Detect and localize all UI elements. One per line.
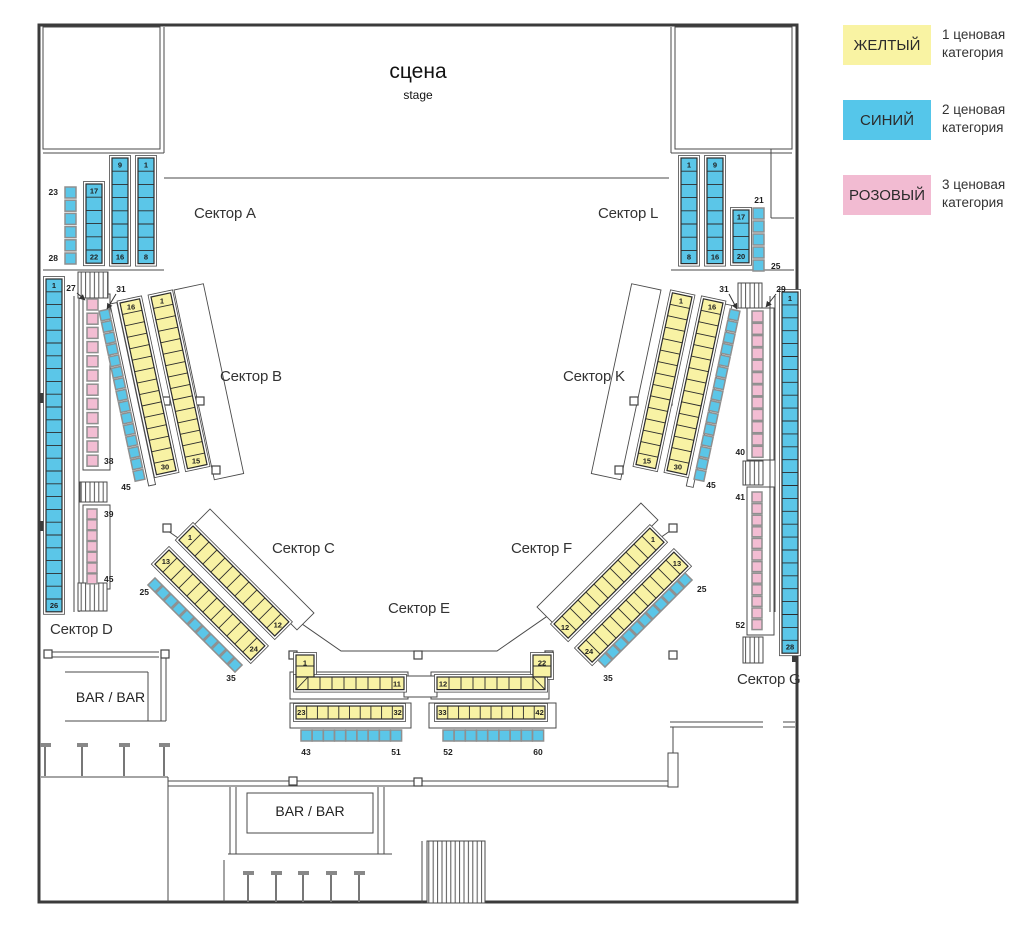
seat-number: 24: [250, 645, 259, 654]
seat[interactable]: [323, 730, 334, 741]
sector-label-e: Сектор E: [388, 600, 450, 617]
seat-number: 25: [140, 587, 150, 597]
door-marker: [414, 651, 422, 659]
seat-number: 1: [303, 659, 307, 668]
seat-number: 24: [585, 647, 594, 656]
seat-row-g-strip-1-28[interactable]: [780, 290, 801, 656]
seat[interactable]: [753, 260, 764, 271]
seat-number: 41: [736, 492, 746, 502]
seat[interactable]: [713, 378, 725, 390]
stairs: [427, 841, 485, 903]
seat[interactable]: [699, 446, 711, 458]
seat-number: 28: [49, 253, 59, 263]
seat[interactable]: [87, 509, 97, 519]
seat[interactable]: [87, 563, 97, 573]
seat[interactable]: [752, 323, 763, 334]
stairs: [738, 283, 762, 308]
seat[interactable]: [510, 730, 521, 741]
seat[interactable]: [87, 342, 98, 353]
legend-desc-blue: 2 ценовая категория: [942, 100, 1005, 137]
legend-item-yellow: ЖЕЛТЫЙ 1 ценовая категория: [843, 25, 1029, 65]
seat[interactable]: [111, 366, 123, 378]
seat[interactable]: [87, 299, 98, 310]
seat[interactable]: [752, 562, 762, 572]
seat[interactable]: [753, 234, 764, 245]
seat[interactable]: [87, 327, 98, 338]
seat[interactable]: [752, 527, 762, 537]
seat-number: 8: [687, 253, 691, 262]
seat-number: 1: [679, 296, 683, 305]
seat[interactable]: [87, 413, 98, 424]
seat[interactable]: [728, 309, 740, 321]
seat[interactable]: [346, 730, 357, 741]
seat-number: 1: [188, 533, 192, 542]
stairs: [78, 583, 107, 611]
legend-desc-line: 3 ценовая: [942, 177, 1005, 192]
seat[interactable]: [87, 520, 97, 530]
seat[interactable]: [706, 412, 718, 424]
seat-row-d-strip-1-26[interactable]: [44, 277, 65, 615]
seat-number: 60: [533, 747, 543, 757]
seat[interactable]: [711, 389, 723, 401]
stage-subtitle: stage: [330, 88, 506, 102]
seat-number: 45: [104, 574, 114, 584]
seat-row-a-ind-23-28[interactable]: [65, 187, 76, 264]
seat[interactable]: [99, 309, 111, 321]
seat-row-g-pink-29-40[interactable]: [752, 311, 763, 457]
seat[interactable]: [752, 348, 763, 359]
seat-row-a-strip-1-8[interactable]: [136, 156, 157, 267]
seat[interactable]: [752, 596, 762, 606]
seat[interactable]: [753, 208, 764, 219]
seat-number: 1: [144, 160, 148, 169]
sector-label-f: Сектор F: [511, 540, 572, 557]
seat[interactable]: [131, 458, 143, 470]
seat-number: 13: [162, 557, 170, 566]
seat-number: 32: [393, 708, 401, 717]
legend-swatch-blue: СИНИЙ: [843, 100, 931, 140]
seat-number: 16: [116, 253, 124, 262]
seat-number: 40: [736, 447, 746, 457]
seat-number: 1: [160, 296, 164, 305]
seat-row-e-r-33-42[interactable]: [435, 704, 548, 722]
seat-number: 28: [786, 642, 794, 651]
legend-desc-line: категория: [942, 45, 1003, 60]
door-marker: [161, 650, 169, 658]
seat[interactable]: [87, 427, 98, 438]
seat[interactable]: [65, 253, 76, 264]
seat-row-g-pink-41-52[interactable]: [752, 492, 762, 630]
seat[interactable]: [752, 608, 762, 618]
seat[interactable]: [87, 398, 98, 409]
seat-number: 45: [121, 482, 131, 492]
seat-number: 43: [301, 747, 311, 757]
stage-area: сцена stage: [330, 60, 506, 102]
seat-number: 23: [297, 708, 305, 717]
seat-row-d-pink-27-38[interactable]: [87, 299, 98, 466]
seat-number: 30: [674, 463, 682, 472]
seat-number: 20: [737, 252, 745, 261]
seat[interactable]: [87, 552, 97, 562]
seat[interactable]: [126, 435, 138, 447]
seat-number: 1: [687, 160, 691, 169]
seat[interactable]: [65, 200, 76, 211]
seat-number: 33: [438, 708, 446, 717]
seat[interactable]: [726, 321, 738, 333]
stairs: [80, 482, 107, 502]
seat[interactable]: [752, 360, 763, 371]
seat-number: 38: [104, 456, 114, 466]
seat[interactable]: [704, 424, 716, 436]
seat[interactable]: [723, 332, 735, 344]
sector-label-l: Сектор L: [598, 205, 658, 222]
door-marker: [212, 466, 220, 474]
seat[interactable]: [753, 221, 764, 232]
seat-number: 21: [754, 195, 764, 205]
seat-number: 16: [708, 302, 716, 311]
seat-number: 26: [50, 601, 58, 610]
seat[interactable]: [521, 730, 532, 741]
seat[interactable]: [133, 469, 145, 481]
seat-number: 25: [697, 584, 707, 594]
seat-number: 16: [127, 302, 135, 311]
seat-number: 51: [391, 747, 401, 757]
seat[interactable]: [87, 441, 98, 452]
seat-number: 22: [538, 659, 546, 668]
sector-label-d: Сектор D: [50, 621, 113, 638]
seat[interactable]: [119, 401, 131, 413]
seat-number: 45: [706, 480, 716, 490]
seat[interactable]: [477, 730, 488, 741]
seat[interactable]: [454, 730, 465, 741]
seat[interactable]: [721, 343, 733, 355]
seat[interactable]: [752, 446, 763, 457]
seat-number: 22: [90, 252, 98, 261]
seat[interactable]: [752, 311, 763, 322]
seat-number: 11: [393, 680, 401, 689]
seat-number: 42: [535, 708, 543, 717]
seat-number: 15: [192, 457, 200, 466]
seat-number: 52: [443, 747, 453, 757]
door-marker: [630, 397, 638, 405]
seat[interactable]: [752, 504, 762, 514]
legend-swatch-yellow: ЖЕЛТЫЙ: [843, 25, 931, 65]
seat[interactable]: [104, 332, 116, 344]
seat-number: 1: [651, 535, 655, 544]
seat-row-l-strip-9-16[interactable]: [705, 156, 726, 267]
door-marker: [196, 397, 204, 405]
seat[interactable]: [499, 730, 510, 741]
legend-desc-line: 1 ценовая: [942, 27, 1005, 42]
seat[interactable]: [312, 730, 323, 741]
seat-number: 30: [161, 463, 169, 472]
door-marker: [44, 650, 52, 658]
seat-number: 12: [439, 680, 447, 689]
seat-number: 31: [719, 284, 729, 294]
seat-number: 1: [788, 294, 792, 303]
seat[interactable]: [694, 469, 706, 481]
door-marker: [414, 778, 422, 786]
seat[interactable]: [87, 384, 98, 395]
seat-row-l-strip-1-8[interactable]: [679, 156, 700, 267]
seat-number: 12: [561, 623, 569, 632]
seat[interactable]: [65, 240, 76, 251]
seat-number: 9: [713, 160, 717, 169]
seat[interactable]: [752, 585, 762, 595]
seat-number: 16: [711, 253, 719, 262]
seat[interactable]: [718, 355, 730, 367]
sector-label-b: Сектор B: [220, 368, 282, 385]
seat[interactable]: [752, 620, 762, 630]
seat[interactable]: [696, 458, 708, 470]
seat-number: 39: [104, 509, 114, 519]
seat-row-d-pink-39-45[interactable]: [87, 509, 97, 584]
price-legend: ЖЕЛТЫЙ 1 ценовая категория СИНИЙ 2 ценов…: [843, 25, 1029, 250]
seat[interactable]: [752, 573, 762, 583]
seat[interactable]: [87, 313, 98, 324]
seat[interactable]: [87, 356, 98, 367]
legend-desc-line: категория: [942, 120, 1003, 135]
seat-number: 27: [66, 283, 76, 293]
seat-row-a-strip-9-16[interactable]: [110, 156, 131, 267]
seat[interactable]: [752, 515, 762, 525]
legend-desc-line: категория: [942, 195, 1003, 210]
legend-item-pink: РОЗОВЫЙ 3 ценовая категория: [843, 175, 1029, 215]
seat[interactable]: [335, 730, 346, 741]
seat[interactable]: [488, 730, 499, 741]
seating-map-page: 1891617222328189161720212511516304511213…: [0, 0, 1030, 938]
seat-row-l-ind-21-25[interactable]: [753, 208, 764, 271]
seat[interactable]: [752, 385, 763, 396]
legend-desc-line: 2 ценовая: [942, 102, 1005, 117]
legend-item-blue: СИНИЙ 2 ценовая категория: [843, 100, 1029, 140]
stage-title: сцена: [330, 60, 506, 84]
seat[interactable]: [87, 531, 97, 541]
seat[interactable]: [87, 541, 97, 551]
seat-number: 52: [736, 620, 746, 630]
seat-number: 25: [771, 261, 781, 271]
legend-swatch-pink: РОЗОВЫЙ: [843, 175, 931, 215]
seat[interactable]: [752, 550, 762, 560]
seat[interactable]: [752, 373, 763, 384]
sector-label-k: Сектор K: [563, 368, 625, 385]
seat[interactable]: [65, 213, 76, 224]
legend-desc-pink: 3 ценовая категория: [942, 175, 1005, 212]
seat-number: 13: [673, 559, 681, 568]
seat-number: 9: [118, 160, 122, 169]
seat[interactable]: [109, 355, 121, 367]
door-marker: [289, 777, 297, 785]
seat-number: 29: [776, 284, 786, 294]
seat[interactable]: [116, 389, 128, 401]
seat[interactable]: [87, 455, 98, 466]
seat[interactable]: [752, 397, 763, 408]
seat[interactable]: [123, 424, 135, 436]
seat[interactable]: [716, 366, 728, 378]
sector-label-c: Сектор C: [272, 540, 335, 557]
door-marker: [615, 466, 623, 474]
seat-number: 17: [90, 186, 98, 195]
door-marker: [669, 651, 677, 659]
seat-row-e-l-43-51[interactable]: [301, 730, 402, 741]
seat[interactable]: [752, 336, 763, 347]
seat-number: 17: [737, 212, 745, 221]
seat[interactable]: [368, 730, 379, 741]
seat[interactable]: [357, 730, 368, 741]
seat[interactable]: [128, 446, 140, 458]
stairs: [78, 272, 108, 298]
sector-label-a: Сектор A: [194, 205, 256, 222]
seat[interactable]: [106, 343, 118, 355]
seat[interactable]: [391, 730, 402, 741]
seat[interactable]: [87, 574, 97, 584]
seat[interactable]: [114, 378, 126, 390]
stairs: [743, 637, 763, 663]
seat[interactable]: [87, 370, 98, 381]
legend-desc-yellow: 1 ценовая категория: [942, 25, 1005, 62]
seat[interactable]: [701, 435, 713, 447]
seat[interactable]: [752, 538, 762, 548]
seat-number: 12: [274, 621, 282, 630]
seat[interactable]: [752, 409, 763, 420]
bar-room-left-label: BAR / BAR: [60, 689, 161, 705]
seat[interactable]: [121, 412, 133, 424]
seat-number: 23: [49, 187, 59, 197]
seat[interactable]: [533, 730, 544, 741]
seat[interactable]: [443, 730, 454, 741]
seat[interactable]: [301, 730, 312, 741]
seat-number: 35: [226, 673, 236, 683]
seat[interactable]: [101, 321, 113, 333]
seat-row-e-r-52-60[interactable]: [443, 730, 544, 741]
seat[interactable]: [752, 492, 762, 502]
seat[interactable]: [379, 730, 390, 741]
seat-row-e-l-23-32[interactable]: [294, 704, 406, 722]
stairs: [743, 461, 763, 485]
seat-number: 31: [116, 284, 126, 294]
seat-number: 35: [603, 673, 613, 683]
seat[interactable]: [752, 434, 763, 445]
seat-number: 1: [52, 281, 56, 290]
seat[interactable]: [65, 187, 76, 198]
seat[interactable]: [465, 730, 476, 741]
seat-number: 15: [643, 457, 651, 466]
sector-label-g: Сектор G: [737, 671, 801, 688]
bar-room-bottom-label: BAR / BAR: [247, 803, 373, 819]
seat[interactable]: [65, 227, 76, 238]
seat[interactable]: [753, 247, 764, 258]
seat[interactable]: [709, 401, 721, 413]
seat-number: 8: [144, 253, 148, 262]
door-marker: [669, 524, 677, 532]
seat[interactable]: [752, 422, 763, 433]
door-marker: [163, 524, 171, 532]
